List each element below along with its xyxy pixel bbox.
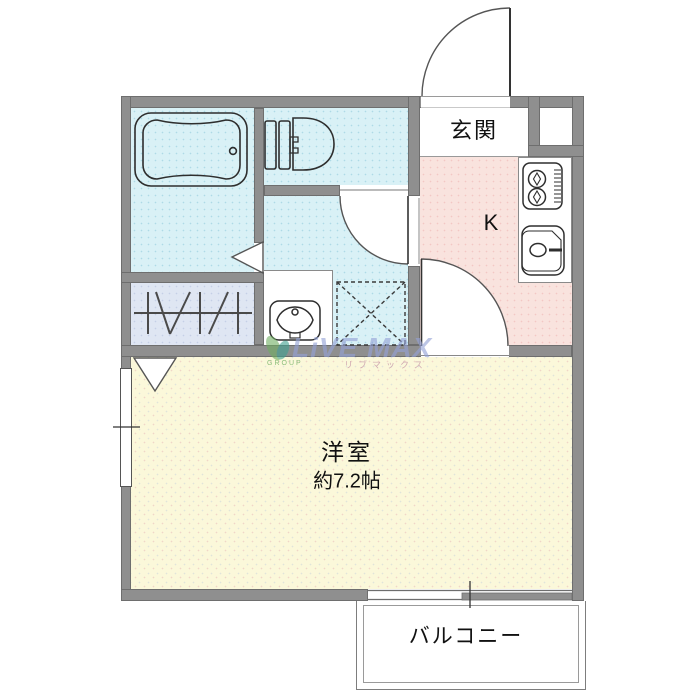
room-label-genkan: 玄関 — [450, 113, 498, 145]
window-symbol — [120, 368, 132, 487]
wall-washroom-kitchen-upper — [408, 96, 420, 196]
kitchen-counter — [518, 157, 572, 283]
shoe-cabinet — [540, 108, 572, 145]
wall-top — [121, 96, 584, 108]
wall-toilet-bottom — [264, 185, 340, 196]
toilet-door-opening — [340, 185, 408, 196]
kitchen-door-opening — [421, 345, 509, 357]
room-label-western: 洋室 — [321, 433, 373, 467]
wall-right — [572, 96, 584, 601]
wall-under-shoebox — [528, 145, 584, 157]
sliding-window-symbol — [368, 589, 572, 601]
floorplan: 玄関 K 洋室 約7.2帖 バルコニー LiVE MAX GROUP リブマック… — [0, 0, 700, 700]
entrance-opening — [421, 96, 510, 108]
bath-door-opening — [254, 243, 264, 272]
wall-bottom — [121, 589, 368, 601]
room-area-western: 約7.2帖 — [313, 465, 381, 494]
washroom-door-opening — [408, 196, 420, 266]
wall-bath-toilet-upper — [254, 108, 264, 243]
room-closet — [131, 283, 254, 345]
room-bathroom — [131, 108, 254, 272]
watermark-group-label: GROUP — [267, 360, 303, 367]
room-label-balcony: バルコニー — [409, 620, 524, 650]
room-label-kitchen: K — [484, 210, 499, 236]
wall-bath-closet — [121, 272, 264, 283]
watermark-katakana: リブマックス — [344, 358, 428, 371]
entrance-door-arc — [422, 8, 510, 96]
